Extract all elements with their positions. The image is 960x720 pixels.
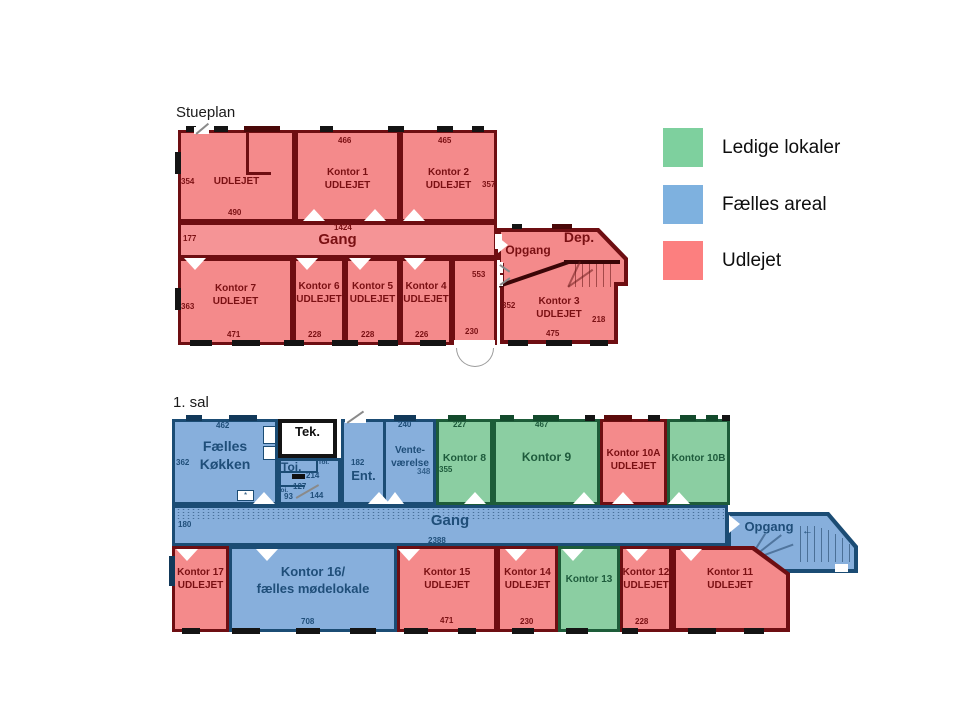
interior-partition <box>246 133 271 175</box>
window-mark <box>232 628 260 634</box>
dim-label: 230 <box>520 617 533 626</box>
legend-swatch-blue <box>663 185 703 224</box>
window-mark <box>350 628 376 634</box>
room-name: Kontor 6 <box>293 281 345 294</box>
room-label-kontor-3: Kontor 3UDLEJET <box>500 296 618 322</box>
room-name: Kontor 15 <box>397 567 497 580</box>
stair-step <box>828 530 829 562</box>
room-label-kontor-1: Kontor 1UDLEJET <box>295 167 400 193</box>
window-mark <box>332 340 358 346</box>
dim-label: 471 <box>227 330 240 339</box>
dim-label: 490 <box>228 208 241 217</box>
dim-label: 465 <box>438 136 451 145</box>
dim-label: 355 <box>439 465 452 474</box>
corridor-label-gang: Gang <box>178 230 497 249</box>
dim-label: 230 <box>465 327 478 336</box>
door-arc <box>456 348 475 367</box>
legend-label-ledige: Ledige lokaler <box>722 137 840 159</box>
room-label-kontor-7: Kontor 7UDLEJET <box>178 283 293 309</box>
window-mark <box>604 415 632 421</box>
dim-label: 182 <box>351 458 364 467</box>
dim-label: 471 <box>440 616 453 625</box>
room-label-kontor-16: Kontor 16/fælles mødelokale <box>229 564 397 597</box>
label-dep: Dep. <box>552 229 606 247</box>
room-name: Kontor 1 <box>295 167 400 180</box>
room-label-toi: Toi. <box>281 460 301 475</box>
room-name: Kontor 10A <box>600 448 667 461</box>
window-mark <box>744 628 764 634</box>
legend-item-faelles: Fælles areal <box>663 185 827 224</box>
dim-label: 467 <box>535 420 548 429</box>
room-label-faelles-koekken: FællesKøkken <box>172 438 278 474</box>
room-label-toi-small-a: Toi. <box>318 459 329 467</box>
window-mark <box>229 415 257 421</box>
stair-step <box>821 528 822 562</box>
stair-step <box>610 264 611 287</box>
window-mark <box>388 126 404 132</box>
legend-item-udlejet: Udlejet <box>663 241 781 280</box>
window-mark <box>546 340 572 346</box>
dim-label: 227 <box>453 420 466 429</box>
window-mark <box>585 415 595 421</box>
room-label-kontor-12: Kontor 12UDLEJET <box>620 567 672 593</box>
stair-step <box>849 544 850 562</box>
window-mark <box>648 415 660 421</box>
window-mark <box>680 415 696 421</box>
room-status: UDLEJET <box>295 180 400 193</box>
room-name: Kontor 12 <box>620 567 672 580</box>
room-name: værelse <box>383 458 437 471</box>
room-label-kontor-17: Kontor 17UDLEJET <box>172 567 229 593</box>
window-mark <box>706 415 718 421</box>
window-mark <box>296 628 320 634</box>
dim-label: 708 <box>301 617 314 626</box>
dim-label: 127 <box>293 482 306 491</box>
room-status: UDLEJET <box>172 580 229 593</box>
room-name: Vente- <box>383 445 437 458</box>
room-label-udlejet-nw: UDLEJET <box>178 176 295 189</box>
window-mark <box>175 152 181 174</box>
window-mark <box>182 628 200 634</box>
room-name: Kontor 2 <box>400 167 497 180</box>
entrance-door-gap <box>454 340 495 348</box>
room-name: Kontor 4 <box>400 281 452 294</box>
window-mark <box>458 628 476 634</box>
room-label-kontor-9: Kontor 9 <box>493 450 600 465</box>
room-status: UDLEJET <box>400 180 497 193</box>
room-name: Kontor 14 <box>497 567 558 580</box>
kitchen-star: * <box>244 491 247 500</box>
room-status: UDLEJET <box>674 580 786 593</box>
floor-title-1-sal: 1. sal <box>173 394 209 411</box>
kontor3-top-wall <box>564 260 620 264</box>
dim-label: 466 <box>338 136 351 145</box>
window-mark <box>512 224 522 229</box>
dim-label: 228 <box>635 617 648 626</box>
room-label-kontor-10a: Kontor 10AUDLEJET <box>600 448 667 474</box>
window-mark <box>590 340 608 346</box>
window-mark <box>472 126 484 132</box>
legend-item-ledige: Ledige lokaler <box>663 128 840 167</box>
door-arc <box>475 348 494 367</box>
label-opgang-stueplan: Opgang <box>498 243 558 258</box>
window-mark <box>500 415 514 421</box>
room-label-kontor-2: Kontor 2UDLEJET <box>400 167 497 193</box>
window-mark <box>512 628 534 634</box>
window-mark <box>186 415 202 421</box>
dim-label: 228 <box>308 330 321 339</box>
room-status: UDLEJET <box>500 309 618 322</box>
room-label-kontor-14: Kontor 14UDLEJET <box>497 567 558 593</box>
floorplan-slide: * <box>0 0 960 720</box>
legend-label-udlejet: Udlejet <box>722 250 781 272</box>
room-name: Køkken <box>172 456 278 474</box>
stair-step <box>835 534 836 562</box>
window-mark <box>404 628 428 634</box>
room-name: Kontor 17 <box>172 567 229 580</box>
room-label-kontor-8: Kontor 8 <box>436 452 493 465</box>
dim-label: 475 <box>546 329 559 338</box>
room-name: Kontor 7 <box>178 283 293 296</box>
room-status: UDLEJET <box>397 580 497 593</box>
stair-step <box>596 264 597 287</box>
room-label-kontor-10b: Kontor 10B <box>667 453 730 466</box>
window-mark <box>284 340 304 346</box>
room-label-ent: Ent. <box>341 468 386 485</box>
room-status: UDLEJET <box>400 294 452 307</box>
room-label-kontor-13: Kontor 13 <box>558 574 620 587</box>
dim-label: 240 <box>398 420 411 429</box>
room-label-kontor-6: Kontor 6UDLEJET <box>293 281 345 307</box>
window-mark <box>190 340 212 346</box>
stair-step <box>814 526 815 562</box>
room-name: Kontor 11 <box>674 567 786 580</box>
room-label-kontor-11: Kontor 11UDLEJET <box>674 567 786 593</box>
room-status: UDLEJET <box>178 176 295 189</box>
stair-step <box>603 264 604 287</box>
window-mark <box>420 340 446 346</box>
window-mark <box>622 628 638 634</box>
window-mark <box>508 340 528 346</box>
dim-label: 214 <box>306 471 319 480</box>
dim-label: 553 <box>472 270 485 279</box>
label-opgang-sal1: Opgang <box>737 519 801 536</box>
room-status: UDLEJET <box>497 580 558 593</box>
legend-swatch-green <box>663 128 703 167</box>
room-label-kontor-15: Kontor 15UDLEJET <box>397 567 497 593</box>
corridor-label-gang-sal1: Gang <box>172 511 728 530</box>
room-status: UDLEJET <box>620 580 672 593</box>
dim-label: 228 <box>361 330 374 339</box>
room-name: Kontor 16/ <box>229 564 397 581</box>
room-name: fælles mødelokale <box>229 581 397 598</box>
room-label-kontor-4: Kontor 4UDLEJET <box>400 281 452 307</box>
dim-label: 2388 <box>428 536 446 545</box>
floor-title-stueplan: Stueplan <box>176 104 235 121</box>
room-status: UDLEJET <box>345 294 400 307</box>
window-mark <box>378 340 398 346</box>
window-mark <box>437 126 453 132</box>
room-name: Fælles <box>172 438 278 456</box>
window-mark <box>566 628 588 634</box>
room-status: UDLEJET <box>293 294 345 307</box>
room-label-tek: Tek. <box>282 424 333 441</box>
stair-step <box>842 538 843 562</box>
window-mark <box>320 126 333 132</box>
legend-swatch-red <box>663 241 703 280</box>
window-mark <box>232 340 260 346</box>
dim-label: 144 <box>310 491 323 500</box>
kitchen-star-box: * <box>237 490 254 501</box>
window-mark <box>244 126 280 132</box>
room-label-kontor-5: Kontor 5UDLEJET <box>345 281 400 307</box>
window-mark <box>722 415 730 421</box>
room-label-ventevaerelse: Vente-værelse <box>383 445 437 471</box>
dim-label: 462 <box>216 421 229 430</box>
room-name: Kontor 3 <box>500 296 618 309</box>
opgang-notch <box>835 564 848 572</box>
window-mark <box>214 126 228 132</box>
room-name: Kontor 5 <box>345 281 400 294</box>
opgang-arrow-icon: ← <box>802 524 813 538</box>
room-label-toi-small-b: Toi. <box>277 487 288 495</box>
dim-label: 226 <box>415 330 428 339</box>
room-status: UDLEJET <box>178 296 293 309</box>
stair-step <box>589 264 590 287</box>
room-kontor-13 <box>558 546 620 632</box>
window-mark <box>688 628 716 634</box>
room-status: UDLEJET <box>600 461 667 474</box>
legend-label-faelles: Fælles areal <box>722 194 827 216</box>
